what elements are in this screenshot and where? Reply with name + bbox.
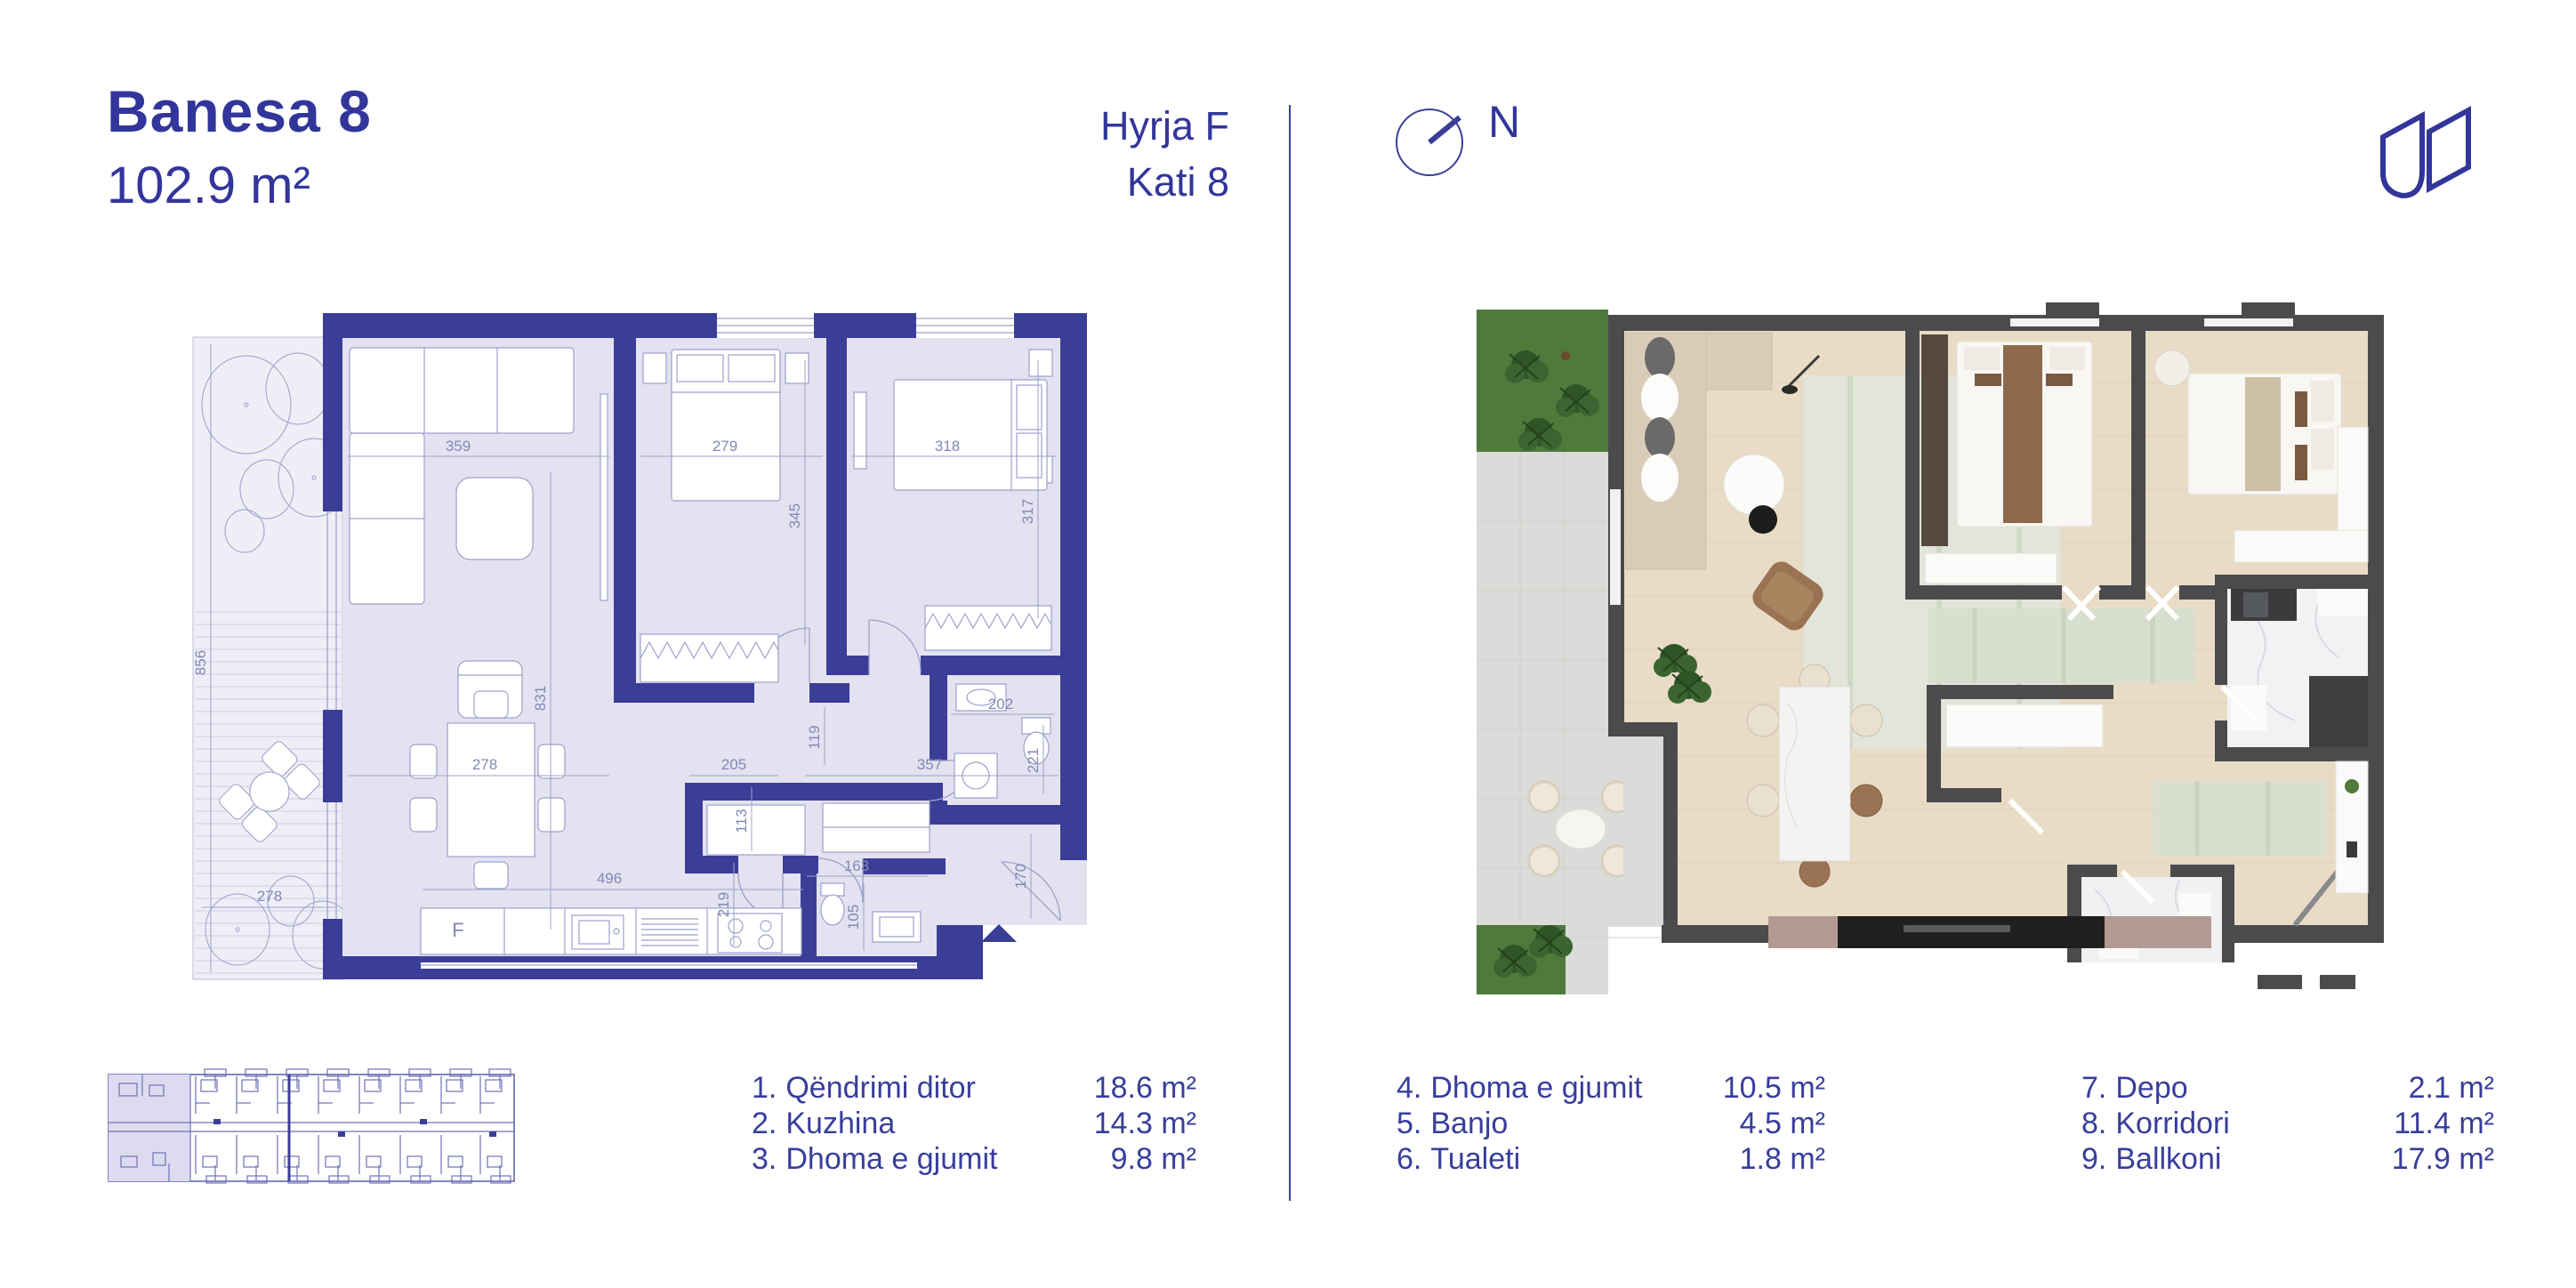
title-block: Banesa 8 102.9 m² xyxy=(107,82,372,212)
legend-item-name: Korridori xyxy=(2115,1107,2229,1140)
tv-console xyxy=(1768,916,2211,948)
dimension-label: 219 xyxy=(715,892,732,917)
legend-item: 9.Ballkoni 17.9 m² xyxy=(2081,1142,2494,1178)
legend-item-name: Dhoma e gjumit xyxy=(1430,1071,1642,1105)
legend-item-area: 11.4 m² xyxy=(2394,1107,2494,1141)
dimension-label: 279 xyxy=(712,438,737,455)
legend-item: 8.Korridori 11.4 m² xyxy=(2081,1107,2494,1142)
legend-column-3: 7.Depo 2.1 m² 8.Korridori 11.4 m² 9.Ball… xyxy=(2081,1071,2494,1178)
legend-item-number: 6. xyxy=(1397,1142,1421,1176)
legend-item: 1.Qëndrimi ditor 18.6 m² xyxy=(752,1071,1196,1107)
floor-label: Kati 8 xyxy=(925,154,1229,210)
building-overview-plan xyxy=(107,1067,520,1192)
legend-item-name: Depo xyxy=(2115,1071,2187,1105)
legend-item-name: Kuzhina xyxy=(785,1107,895,1140)
dimension-label: 318 xyxy=(935,438,960,455)
dimension-label: 119 xyxy=(806,725,823,749)
legend-item: 2.Kuzhina 14.3 m² xyxy=(752,1107,1196,1142)
legend-item-area: 2.1 m² xyxy=(2409,1071,2494,1106)
legend-item-area: 4.5 m² xyxy=(1740,1107,1825,1141)
dimension-label: 202 xyxy=(988,696,1013,712)
dimension-label: 105 xyxy=(845,905,862,930)
legend-item-area: 14.3 m² xyxy=(1094,1107,1196,1141)
fridge-label: F xyxy=(452,919,463,941)
legend-item-area: 9.8 m² xyxy=(1111,1142,1196,1177)
dimension-label: 170 xyxy=(1012,864,1029,889)
legend-item-number: 5. xyxy=(1397,1107,1421,1140)
dimension-label: 359 xyxy=(446,438,471,455)
dimension-label: 163 xyxy=(844,857,869,874)
legend-item-number: 2. xyxy=(752,1107,777,1140)
dimension-label: 357 xyxy=(917,756,942,773)
dimension-label: 221 xyxy=(1025,748,1042,773)
legend-item-number: 1. xyxy=(752,1071,777,1105)
entry-label: Hyrja F xyxy=(925,98,1229,154)
legend-item: 7.Depo 2.1 m² xyxy=(2081,1071,2494,1107)
legend-item-name: Tualeti xyxy=(1430,1142,1520,1176)
legend-item: 4.Dhoma e gjumit 10.5 m² xyxy=(1397,1071,1825,1107)
dimension-label: 278 xyxy=(257,888,282,905)
marble-room xyxy=(2222,589,2368,747)
legend-item: 3.Dhoma e gjumit 9.8 m² xyxy=(752,1142,1196,1178)
legend-item-area: 10.5 m² xyxy=(1723,1071,1825,1106)
legend-item-area: 17.9 m² xyxy=(2392,1142,2494,1177)
north-compass-icon: N xyxy=(1374,80,1570,196)
technical-floor-plan: 359 279 318 345 317 856 831 119 202 221 … xyxy=(191,307,1099,983)
entry-floor-block: Hyrja F Kati 8 xyxy=(925,98,1229,210)
legend-item-name: Banjo xyxy=(1430,1107,1508,1140)
total-area: 102.9 m² xyxy=(107,160,372,212)
dimension-label: 317 xyxy=(1019,499,1036,524)
page-title: Banesa 8 xyxy=(107,82,372,141)
legend-item-number: 9. xyxy=(2081,1142,2106,1176)
legend-item-area: 18.6 m² xyxy=(1094,1071,1196,1106)
rendered-floor-plan xyxy=(1477,302,2421,994)
legend-item-area: 1.8 m² xyxy=(1740,1142,1825,1177)
dimension-label: 113 xyxy=(733,809,750,833)
vertical-divider xyxy=(1289,105,1291,1201)
dimension-label: 278 xyxy=(472,756,497,773)
legend-item: 6.Tualeti 1.8 m² xyxy=(1397,1142,1825,1178)
dimension-label: 496 xyxy=(597,870,622,887)
dimension-label: 856 xyxy=(192,650,209,675)
legend-item-name: Qëndrimi ditor xyxy=(785,1071,976,1105)
legend-item-number: 8. xyxy=(2081,1107,2106,1140)
legend-item: 5.Banjo 4.5 m² xyxy=(1397,1107,1825,1142)
dimension-label: 831 xyxy=(532,686,549,711)
dimension-label: 205 xyxy=(721,756,746,773)
legend-item-number: 7. xyxy=(2081,1071,2106,1105)
pocket-counter xyxy=(1946,704,2103,747)
legend-item-number: 4. xyxy=(1397,1071,1421,1105)
dimension-label: 345 xyxy=(786,503,803,528)
north-label: N xyxy=(1488,97,1520,147)
legend-item-number: 3. xyxy=(752,1142,777,1176)
company-logo-icon xyxy=(2371,100,2481,206)
legend-column-2: 4.Dhoma e gjumit 10.5 m² 5.Banjo 4.5 m² … xyxy=(1397,1071,1825,1178)
legend-item-name: Ballkoni xyxy=(2115,1142,2221,1176)
legend-column-1: 1.Qëndrimi ditor 18.6 m² 2.Kuzhina 14.3 … xyxy=(752,1071,1196,1178)
legend-item-name: Dhoma e gjumit xyxy=(785,1142,997,1176)
